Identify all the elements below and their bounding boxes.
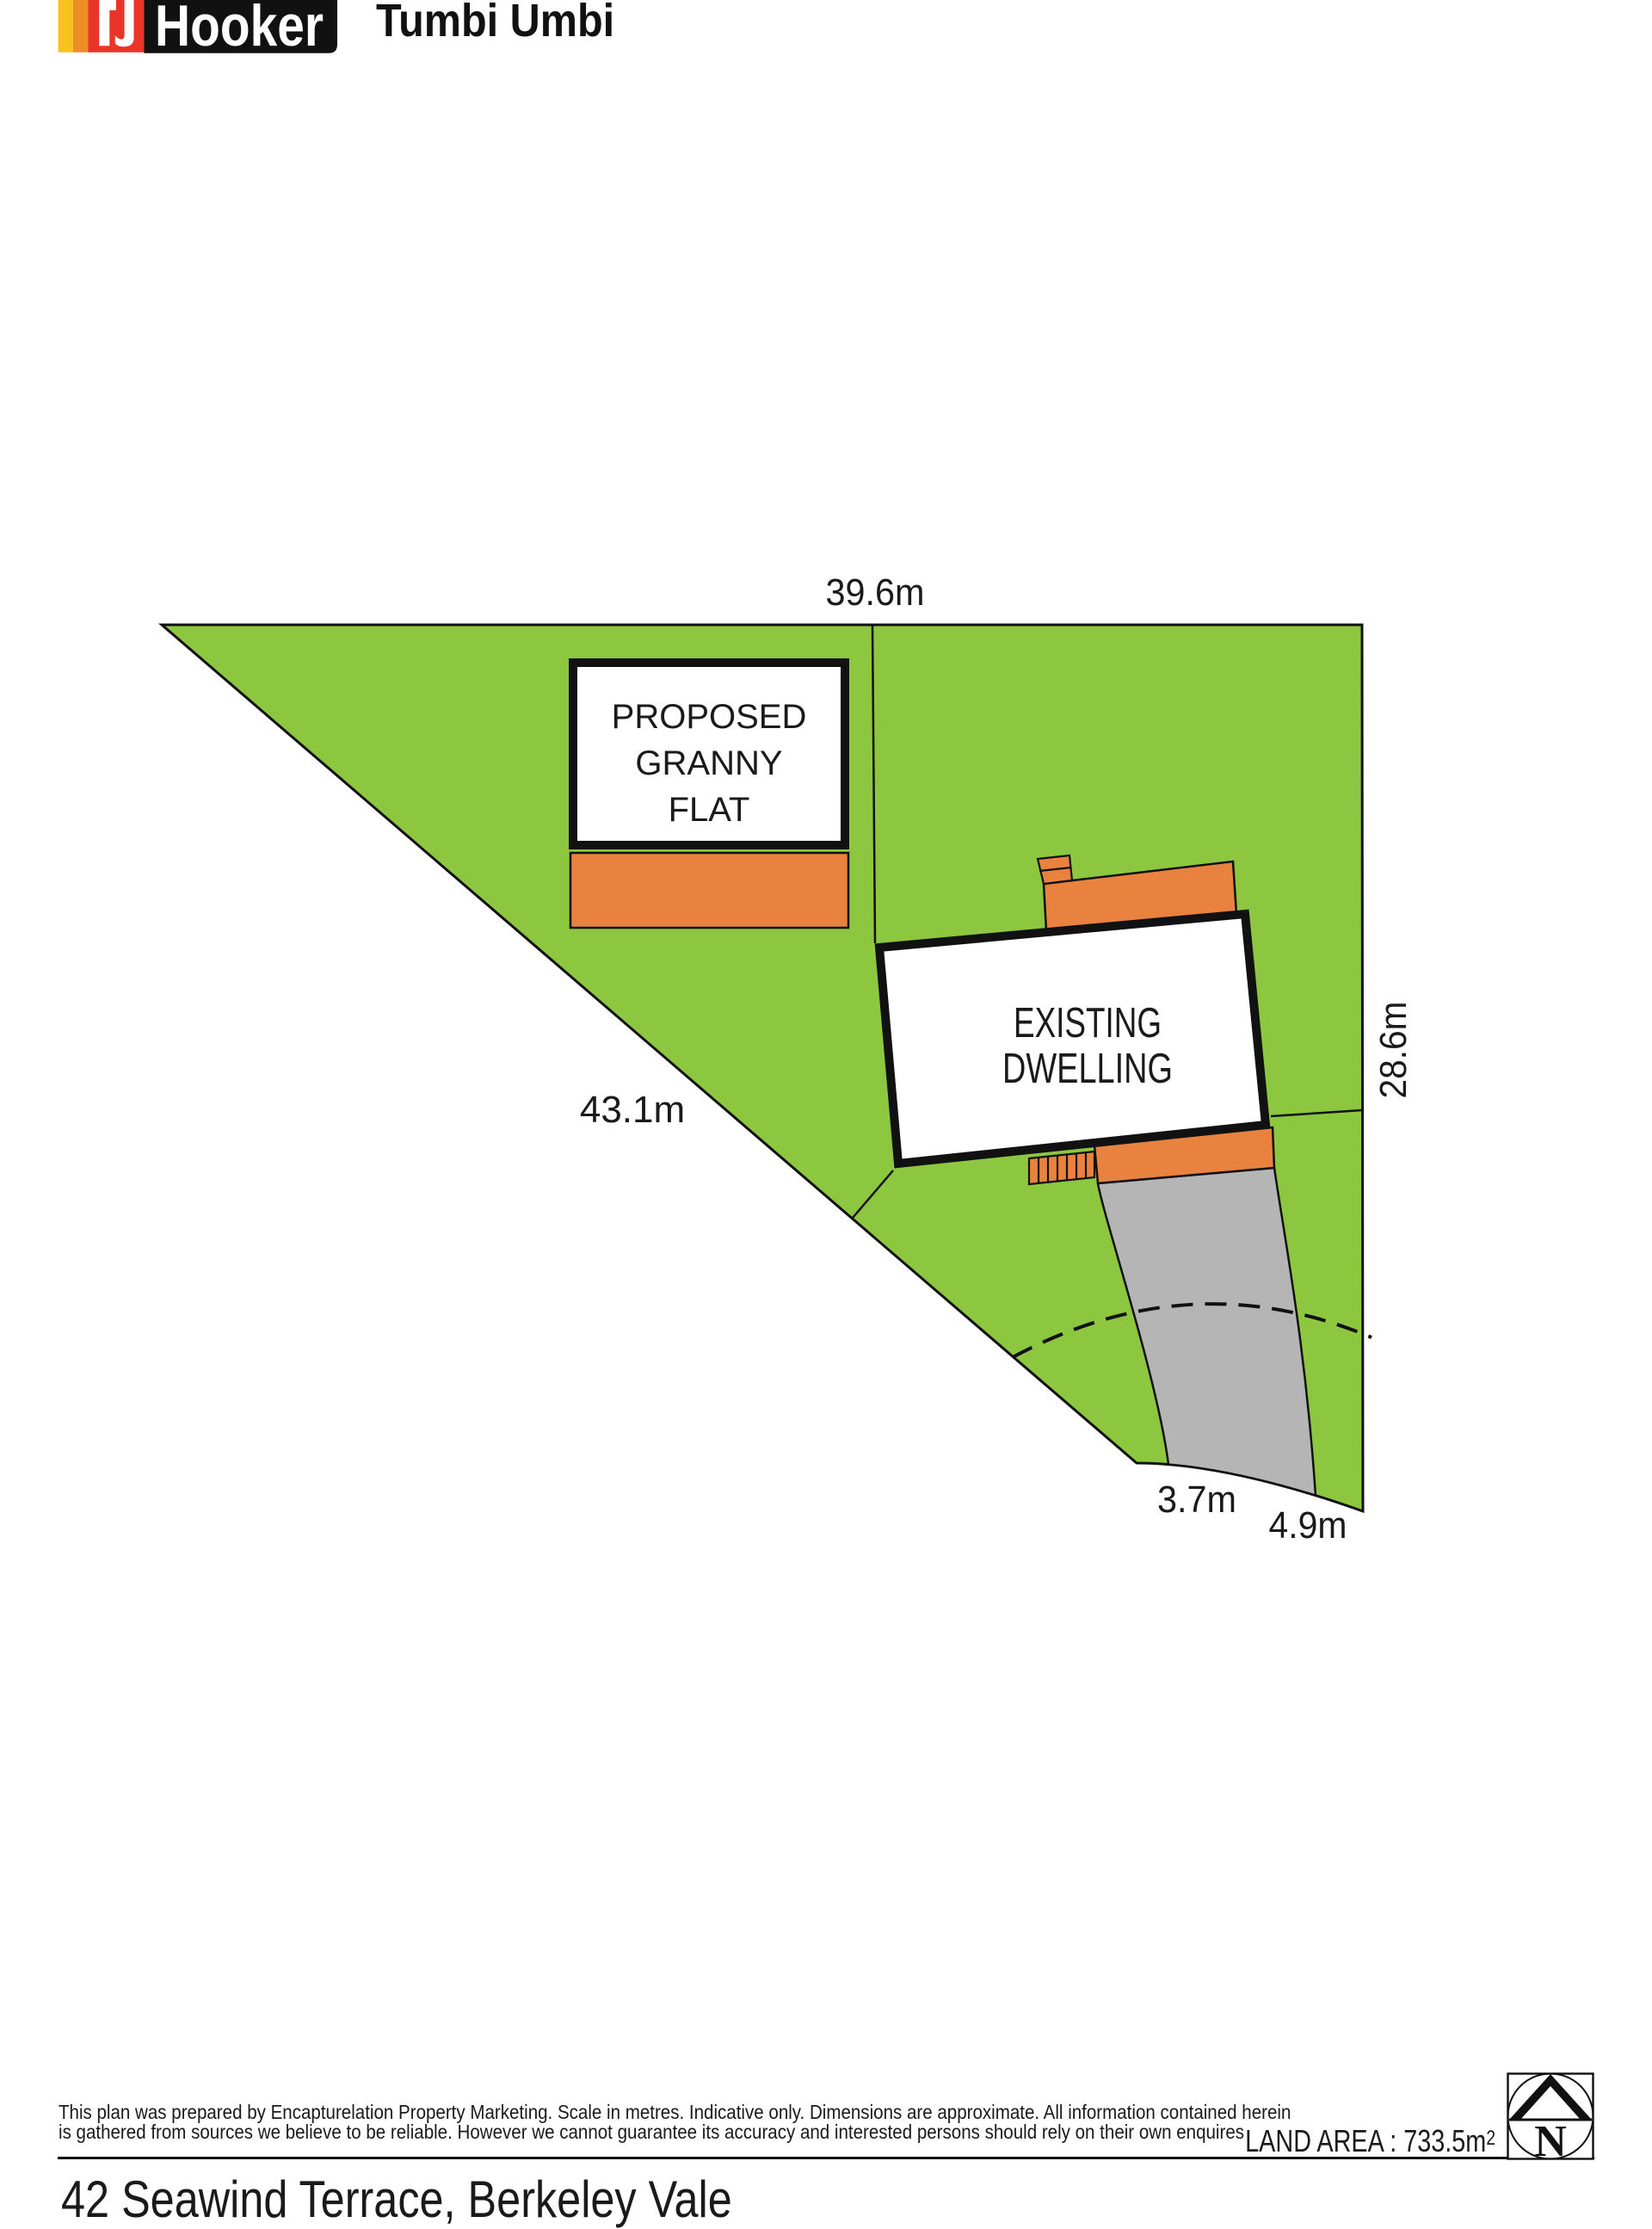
svg-text:GRANNY: GRANNY: [635, 744, 782, 782]
svg-text:PROPOSED: PROPOSED: [612, 698, 807, 736]
svg-text:3.7m: 3.7m: [1157, 1479, 1236, 1521]
svg-text:4.9m: 4.9m: [1269, 1504, 1347, 1547]
svg-text:43.1m: 43.1m: [580, 1089, 685, 1131]
svg-text:FLAT: FLAT: [669, 791, 750, 829]
svg-text:28.6m: 28.6m: [1372, 1002, 1415, 1099]
svg-text:N: N: [1534, 2117, 1567, 2160]
svg-text:EXISTING: EXISTING: [1014, 1000, 1162, 1047]
svg-text:39.6m: 39.6m: [826, 571, 925, 614]
svg-text:DWELLING: DWELLING: [1002, 1046, 1173, 1092]
